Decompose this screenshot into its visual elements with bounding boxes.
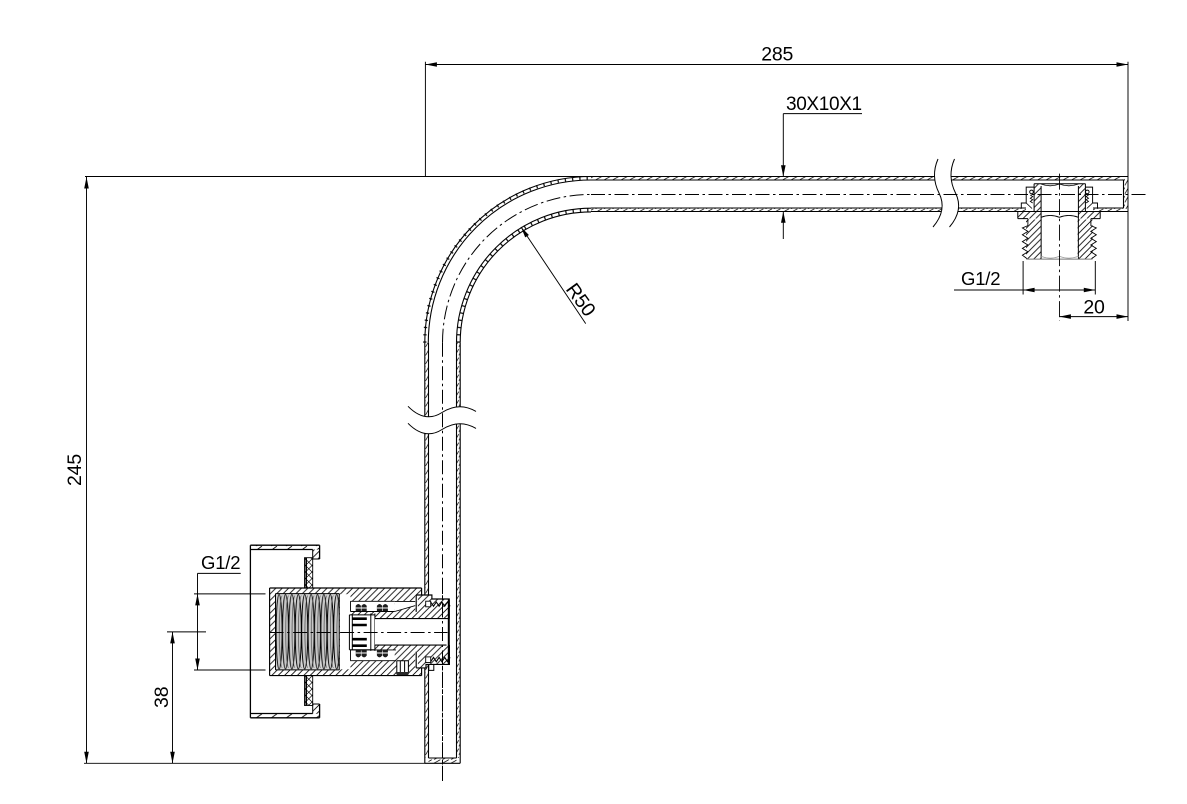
- svg-text:38: 38: [151, 687, 173, 708]
- svg-text:G1/2: G1/2: [201, 552, 240, 573]
- svg-text:20: 20: [1083, 297, 1105, 319]
- svg-text:285: 285: [761, 44, 793, 66]
- svg-text:245: 245: [64, 454, 86, 486]
- svg-text:30X10X1: 30X10X1: [786, 94, 862, 115]
- svg-text:G1/2: G1/2: [961, 268, 1000, 289]
